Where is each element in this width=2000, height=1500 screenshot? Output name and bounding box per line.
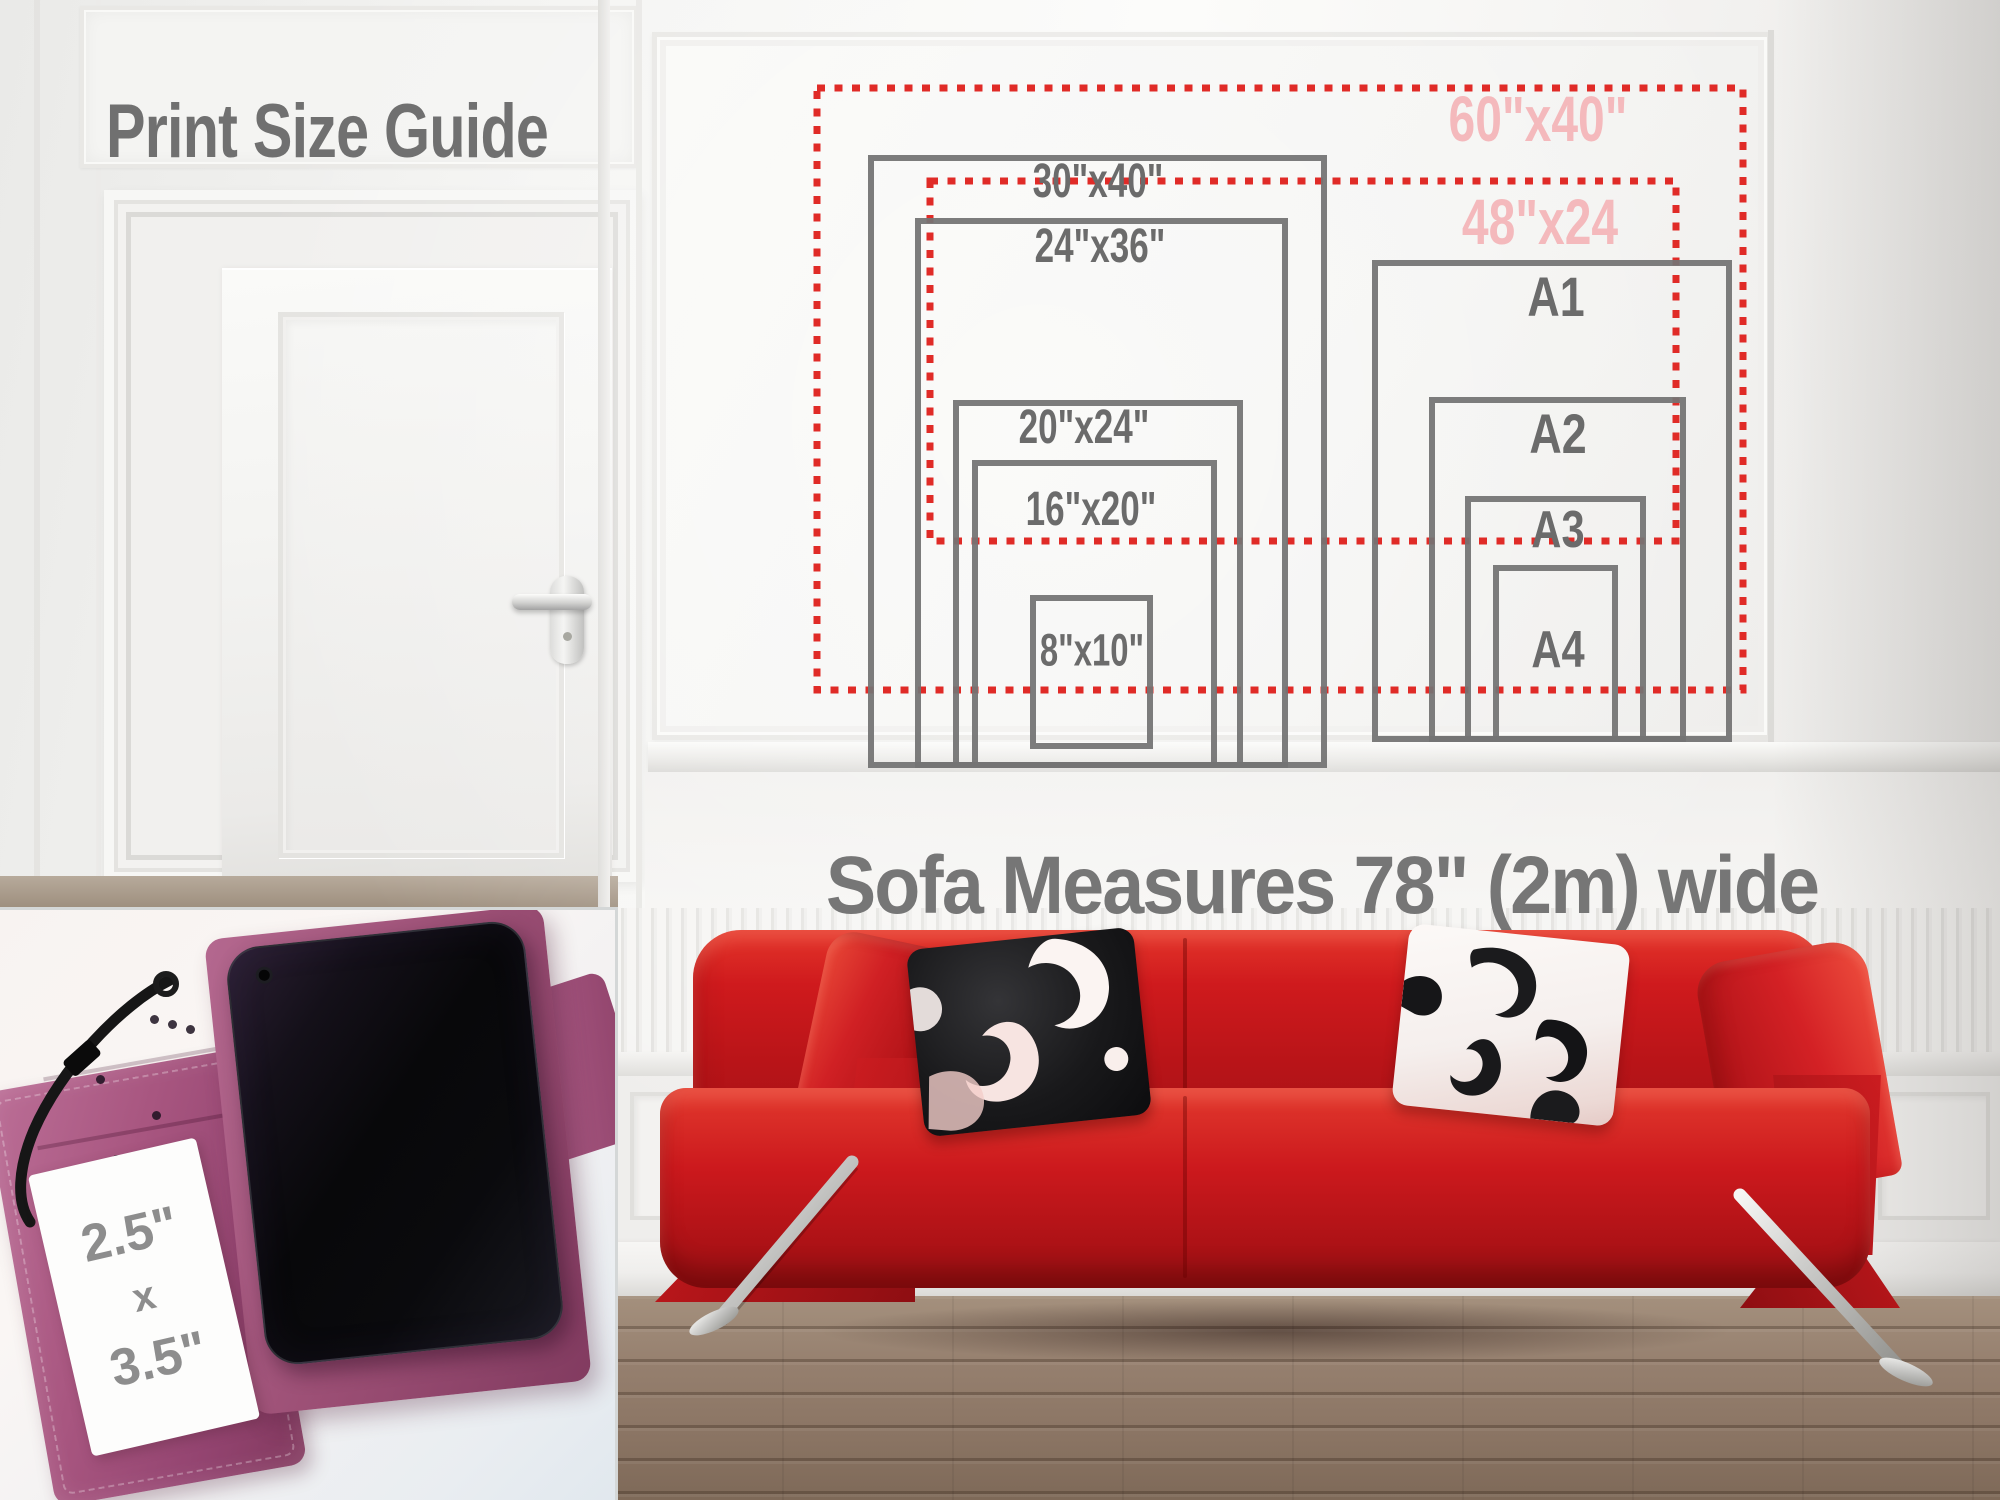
print-size-guide-image: 30"x40" 24"x36" 20"x24" 16"x20" 8"x10" A… [0,0,2000,1500]
print-size-label-8x10: 8"x10" [1040,628,1144,673]
case-hole [96,1075,105,1084]
print-size-label-a2: A2 [1529,406,1586,462]
case-hole [186,1025,195,1034]
page-title: Print Size Guide [106,88,548,175]
case-hole [152,1111,161,1120]
print-size-label-a4: A4 [1531,624,1584,676]
print-size-label-60x40: 60"x40" [1449,87,1628,151]
sofa-legs [600,1100,2000,1400]
card-width-label: 2.5" [77,1198,183,1270]
case-hole [150,1015,159,1024]
case-hole [168,1020,177,1029]
print-size-label-16x20: 16"x20" [1026,486,1157,534]
card-height-label: 3.5" [105,1323,211,1395]
sofa-right-leg [1740,1195,1902,1370]
door-panel [278,312,564,858]
print-size-label-30x40: 30"x40" [1033,158,1164,206]
sofa-left-leg [720,1162,852,1318]
black-swirl-pattern [1391,923,1631,1127]
door-handle-icon [512,594,592,610]
print-size-label-24x36: 24"x36" [1035,223,1166,271]
wall-molding-line [34,0,40,908]
sofa-right-foot [1876,1352,1936,1392]
white-moustache-pillow [1391,923,1631,1127]
print-size-label-48x24: 48"x24 [1462,190,1618,254]
print-size-label-a3: A3 [1531,504,1584,556]
sofa-left-foot [686,1301,742,1341]
sofa-measure-caption: Sofa Measures 78" (2m) wide [826,839,1818,933]
print-size-label-a1: A1 [1527,269,1584,325]
wall-corner-molding [636,0,642,910]
card-separator-label: x [129,1275,160,1319]
print-size-label-20x24: 20"x24" [1019,404,1150,452]
floor-under-door [0,876,618,910]
door-handle-plate [550,576,584,664]
wall-corner-molding [598,0,610,910]
door-keyhole [563,632,572,641]
phone-case-inset-photo: 2.5" x 3.5" [0,907,618,1500]
